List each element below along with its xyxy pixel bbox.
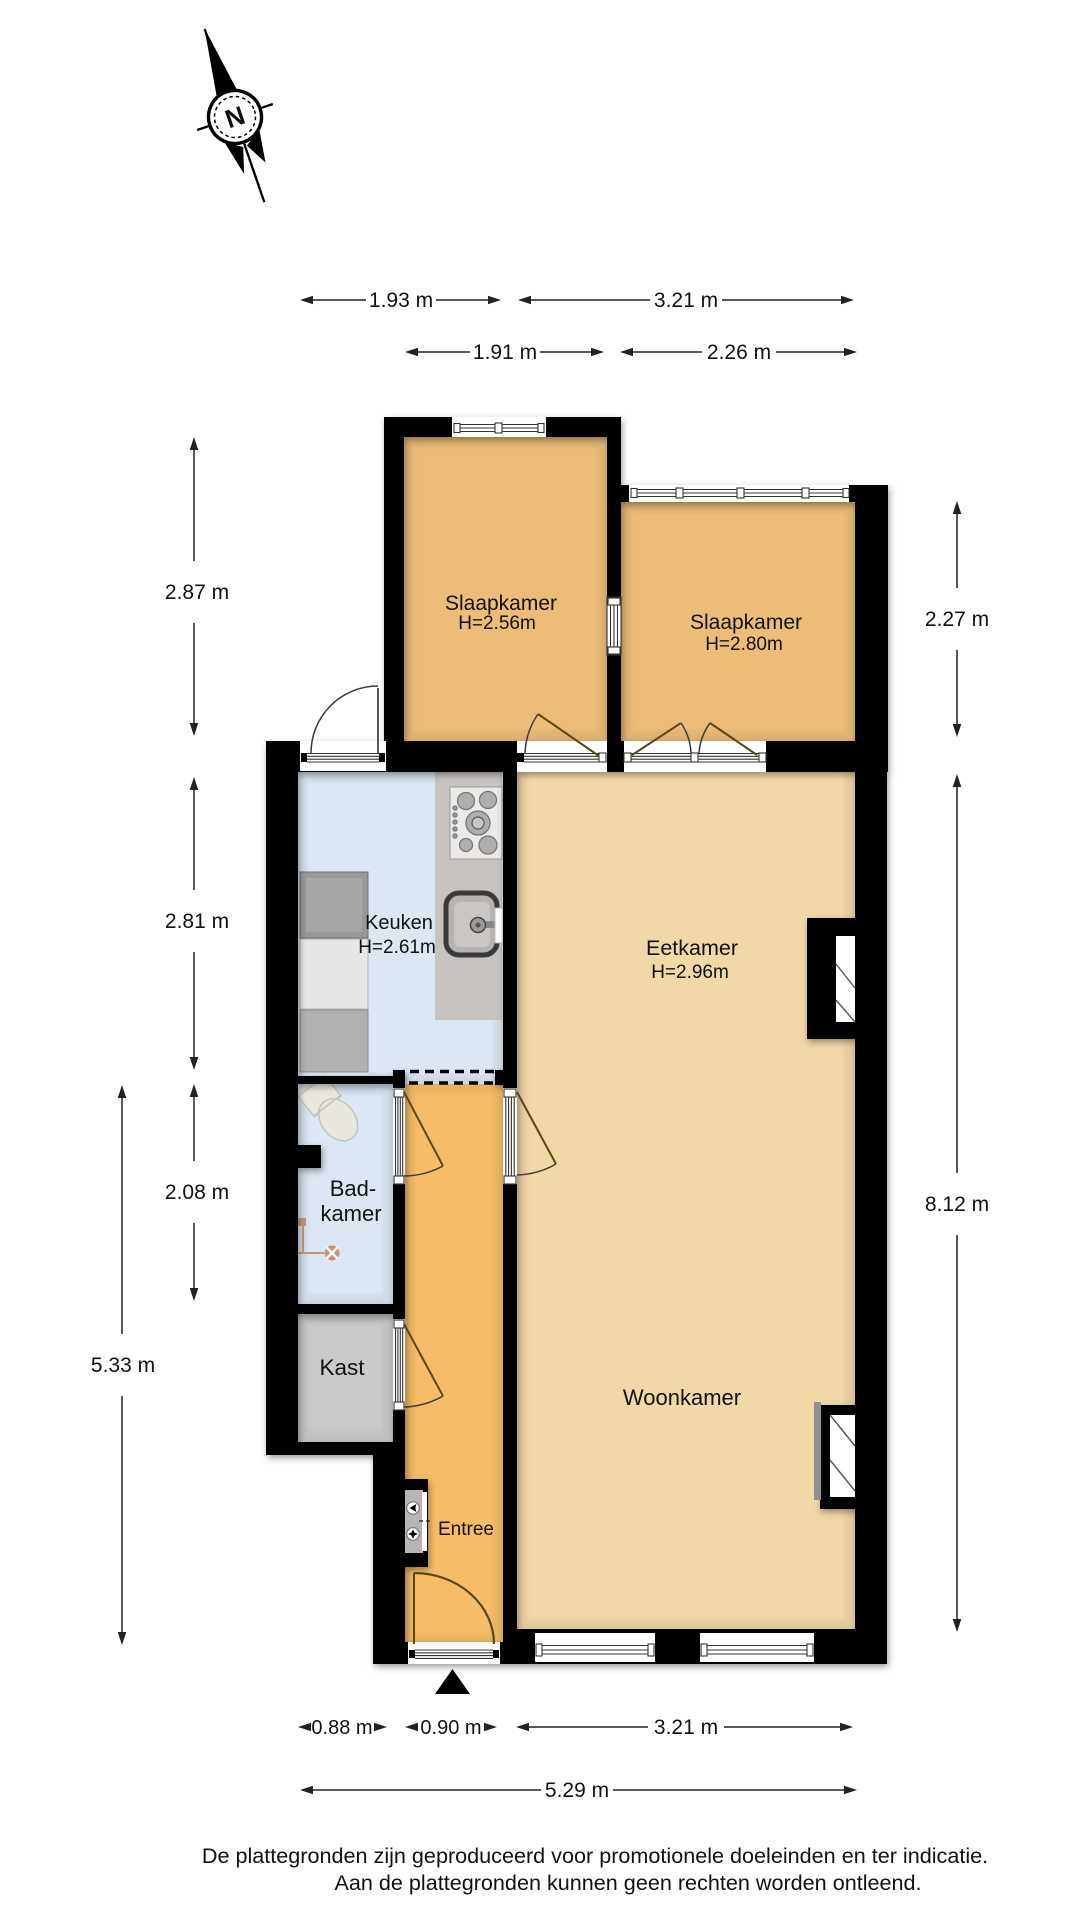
svg-text:2.81 m: 2.81 m: [165, 910, 229, 933]
svg-text:0.88 m: 0.88 m: [311, 1717, 372, 1739]
svg-text:Keuken: Keuken: [365, 912, 433, 934]
svg-text:0.90 m: 0.90 m: [420, 1717, 481, 1739]
svg-text:kamer: kamer: [320, 1201, 381, 1226]
svg-text:H=2.61m: H=2.61m: [358, 937, 436, 958]
svg-text:Kast: Kast: [319, 1355, 365, 1380]
svg-text:3.21 m: 3.21 m: [654, 1716, 718, 1739]
svg-text:3.21 m: 3.21 m: [654, 289, 718, 312]
svg-text:Slaapkamer: Slaapkamer: [690, 611, 802, 634]
svg-text:Woonkamer: Woonkamer: [623, 1385, 741, 1410]
svg-text:2.08 m: 2.08 m: [165, 1181, 229, 1204]
svg-text:2.27 m: 2.27 m: [925, 608, 989, 631]
svg-text:Slaapkamer: Slaapkamer: [445, 592, 557, 615]
svg-text:Bad-: Bad-: [330, 1176, 376, 1201]
svg-text:H=2.96m: H=2.96m: [651, 962, 729, 983]
svg-text:Aan de plattegronden kunnen ge: Aan de plattegronden kunnen geen rechten…: [334, 1870, 921, 1895]
svg-text:2.26 m: 2.26 m: [707, 341, 771, 364]
svg-text:H=2.80m: H=2.80m: [705, 634, 783, 655]
svg-text:H=2.56m: H=2.56m: [458, 613, 536, 634]
svg-text:Eetkamer: Eetkamer: [646, 936, 738, 960]
svg-text:1.91 m: 1.91 m: [473, 341, 537, 364]
svg-text:De plattegronden zijn geproduc: De plattegronden zijn geproduceerd voor …: [202, 1843, 988, 1868]
svg-text:2.87 m: 2.87 m: [165, 581, 229, 604]
svg-text:1.93 m: 1.93 m: [369, 289, 433, 312]
svg-text:5.33 m: 5.33 m: [91, 1354, 155, 1377]
svg-text:5.29 m: 5.29 m: [545, 1779, 609, 1802]
svg-text:Entree: Entree: [438, 1519, 494, 1540]
svg-text:8.12 m: 8.12 m: [925, 1193, 989, 1216]
